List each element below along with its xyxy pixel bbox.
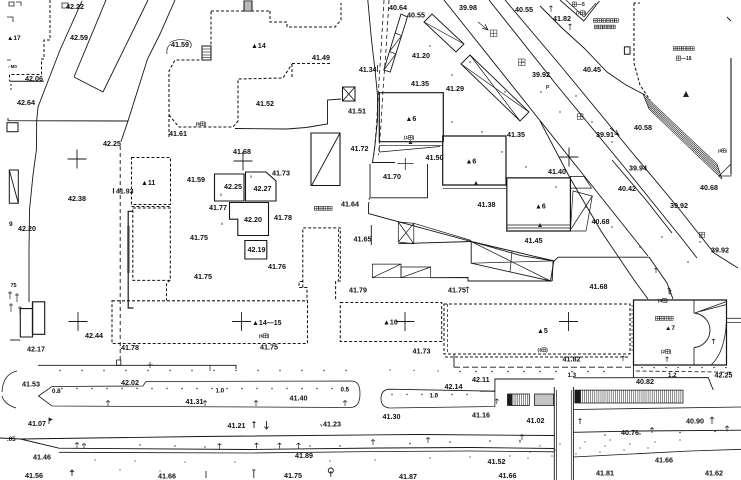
svg-text:41.02: 41.02 — [527, 416, 545, 425]
svg-text:—5: —5 — [577, 2, 585, 8]
svg-text:39.94: 39.94 — [629, 164, 647, 173]
svg-text:40.58: 40.58 — [634, 123, 652, 132]
svg-text:41.66: 41.66 — [655, 456, 673, 465]
svg-text:42.11: 42.11 — [472, 375, 490, 384]
svg-text:42.25: 42.25 — [103, 139, 121, 148]
svg-text:41.46: 41.46 — [33, 453, 51, 462]
svg-text:41.59: 41.59 — [171, 40, 189, 49]
svg-text:41.75: 41.75 — [284, 471, 302, 480]
svg-text:41.40: 41.40 — [548, 167, 566, 176]
svg-text:41.34: 41.34 — [359, 67, 377, 74]
svg-text:41.07: 41.07 — [28, 419, 46, 428]
svg-text:40.68: 40.68 — [592, 217, 610, 226]
svg-text:41.31: 41.31 — [186, 397, 204, 406]
svg-text:41.68: 41.68 — [590, 282, 608, 291]
svg-text:41.50: 41.50 — [426, 153, 444, 162]
svg-text:41.75: 41.75 — [190, 233, 208, 242]
svg-text:p: p — [546, 84, 549, 90]
svg-text:41.77: 41.77 — [209, 203, 227, 212]
svg-text:41.82: 41.82 — [553, 14, 571, 23]
svg-text:II: II — [221, 221, 223, 226]
svg-text:42.44: 42.44 — [85, 331, 103, 340]
svg-text:41.81: 41.81 — [596, 469, 614, 478]
svg-text:▲6: ▲6 — [406, 116, 417, 123]
svg-text:1.0: 1.0 — [430, 393, 439, 400]
svg-text:40.90: 40.90 — [686, 417, 704, 426]
svg-text:(4: (4 — [658, 298, 662, 303]
svg-text:41.21: 41.21 — [228, 421, 246, 430]
svg-text:40.68: 40.68 — [700, 183, 718, 192]
svg-text:41.52: 41.52 — [488, 457, 506, 466]
svg-text:(7: (7 — [576, 11, 581, 16]
svg-text:41.78: 41.78 — [274, 213, 292, 222]
svg-text:⌐M0: ⌐M0 — [8, 64, 17, 69]
svg-text:41.20: 41.20 — [412, 51, 430, 60]
svg-text:42.20: 42.20 — [244, 215, 262, 224]
svg-text:40.82: 40.82 — [636, 377, 654, 386]
svg-text:41.40: 41.40 — [290, 394, 308, 403]
svg-text:(2: (2 — [661, 349, 666, 354]
svg-text:42.19: 42.19 — [248, 245, 266, 254]
svg-text:41.72: 41.72 — [351, 144, 369, 153]
svg-text:9: 9 — [9, 221, 13, 228]
svg-text:40.76: 40.76 — [621, 428, 639, 437]
svg-text:(6: (6 — [259, 334, 264, 339]
svg-text:▲14: ▲14 — [251, 43, 266, 50]
svg-text:40.64: 40.64 — [389, 3, 407, 12]
svg-text:39.91: 39.91 — [596, 130, 614, 139]
svg-text:41.53: 41.53 — [22, 380, 40, 389]
svg-text:41.66: 41.66 — [499, 471, 517, 480]
svg-text:41.61: 41.61 — [169, 129, 187, 138]
svg-text:41.51: 41.51 — [348, 107, 366, 116]
svg-text:▲10: ▲10 — [383, 320, 398, 327]
svg-text:41.65: 41.65 — [354, 235, 372, 244]
svg-text:41.73: 41.73 — [413, 347, 431, 356]
svg-text:1.0: 1.0 — [216, 388, 225, 395]
svg-text:39.92: 39.92 — [532, 70, 550, 79]
svg-text:II: II — [220, 192, 222, 197]
svg-text:42.59: 42.59 — [70, 33, 88, 42]
svg-text:39.92: 39.92 — [711, 246, 729, 255]
svg-text:39.98: 39.98 — [459, 3, 477, 12]
svg-text:42.64: 42.64 — [17, 98, 35, 107]
svg-text:0.8: 0.8 — [52, 388, 61, 395]
svg-text:41.23: 41.23 — [323, 420, 341, 429]
svg-text:.05: .05 — [7, 436, 16, 443]
svg-text:▲17: ▲17 — [7, 35, 21, 42]
svg-text:▲6: ▲6 — [466, 159, 477, 166]
svg-text:41.75: 41.75 — [448, 286, 466, 295]
svg-text:42.25: 42.25 — [715, 371, 733, 380]
svg-text:40.42: 40.42 — [618, 184, 636, 193]
svg-text:▲5: ▲5 — [537, 328, 548, 335]
svg-text:—16: —16 — [681, 56, 692, 62]
svg-text:41.82: 41.82 — [563, 355, 581, 364]
svg-text:41.79: 41.79 — [349, 286, 367, 295]
svg-text:41.66: 41.66 — [158, 472, 176, 480]
svg-text:41.75: 41.75 — [194, 272, 212, 281]
svg-text:41.78: 41.78 — [121, 343, 139, 352]
svg-text:41.35: 41.35 — [411, 79, 429, 88]
svg-text:41.87: 41.87 — [399, 472, 417, 480]
svg-text:41.89: 41.89 — [295, 451, 313, 460]
svg-text:41.56: 41.56 — [25, 471, 43, 480]
svg-text:40.55: 40.55 — [407, 11, 425, 20]
svg-text:0.5: 0.5 — [341, 387, 350, 394]
svg-text:42.14: 42.14 — [445, 382, 463, 391]
svg-text:41.16: 41.16 — [472, 411, 490, 420]
svg-text:41.52: 41.52 — [256, 99, 274, 108]
svg-text:▲14—15: ▲14—15 — [252, 320, 282, 327]
svg-text:41.35: 41.35 — [507, 130, 525, 139]
svg-text:41.38: 41.38 — [478, 200, 496, 209]
svg-text:41.73: 41.73 — [272, 169, 290, 178]
svg-text:75: 75 — [11, 283, 17, 289]
svg-text:42.20: 42.20 — [18, 224, 36, 233]
svg-text:(1: (1 — [404, 135, 409, 140]
svg-text:41.64: 41.64 — [341, 200, 359, 209]
svg-text:41.68: 41.68 — [233, 147, 251, 156]
svg-text:39.92: 39.92 — [670, 201, 688, 210]
svg-text:▲6: ▲6 — [535, 204, 546, 211]
svg-text:41.75: 41.75 — [260, 343, 278, 352]
svg-text:41.45: 41.45 — [525, 236, 543, 245]
svg-text:41.29: 41.29 — [446, 84, 464, 93]
svg-text:41.49: 41.49 — [312, 53, 330, 62]
svg-text:42.17: 42.17 — [27, 345, 45, 354]
svg-text:40.55: 40.55 — [515, 5, 533, 14]
svg-text:1.2: 1.2 — [668, 372, 677, 379]
svg-text:42.38: 42.38 — [68, 194, 86, 203]
svg-text:II: II — [250, 174, 252, 179]
svg-text:41.70: 41.70 — [383, 172, 401, 181]
svg-text:41.30: 41.30 — [383, 412, 401, 421]
svg-text:42.27: 42.27 — [254, 184, 272, 193]
svg-text:(3: (3 — [538, 348, 543, 353]
svg-text:41.59: 41.59 — [187, 175, 205, 184]
svg-text:40.45: 40.45 — [583, 65, 601, 74]
svg-text:42.25: 42.25 — [224, 182, 242, 191]
svg-text:(6: (6 — [196, 122, 201, 127]
svg-text:41.62: 41.62 — [705, 469, 723, 478]
svg-text:▲7: ▲7 — [665, 325, 675, 332]
svg-text:41.76: 41.76 — [268, 262, 286, 271]
svg-text:42.06: 42.06 — [25, 74, 43, 83]
svg-text:▲11: ▲11 — [141, 180, 155, 187]
